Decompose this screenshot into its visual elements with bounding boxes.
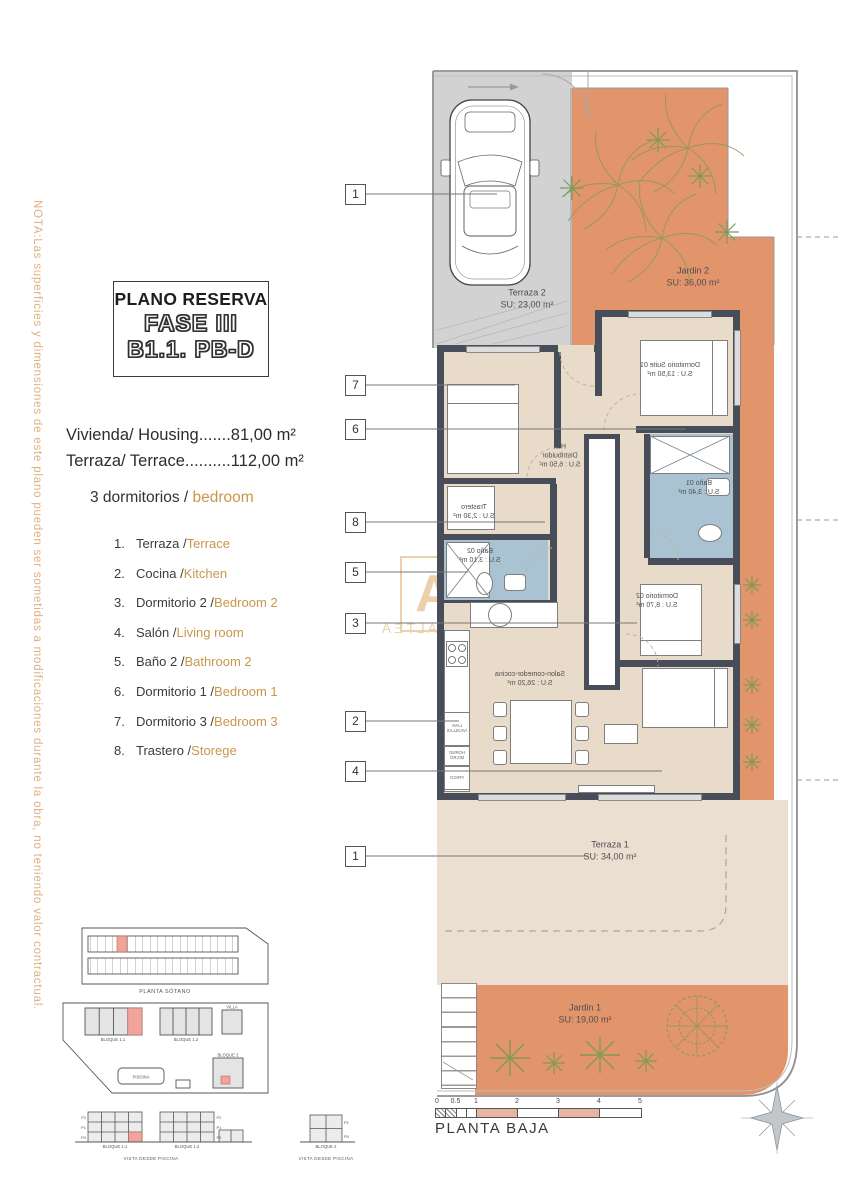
legend-item: 4.Salón / Living room: [114, 625, 278, 640]
floor-label-p0-left: P0: [81, 1135, 87, 1140]
scale-bar: 0 0.5 1 2 3 4 5 PLANTA BAJA: [435, 1098, 665, 1144]
legend-en: Kitchen: [184, 566, 227, 581]
tag-kitchen: 2: [345, 711, 366, 732]
garden1: [475, 985, 788, 1095]
site-bloque2-label: BLOQUE 2: [218, 1053, 240, 1058]
terrace1: [437, 800, 788, 985]
legend-item: 7.Dormitorio 3 / Bedroom 3: [114, 714, 278, 729]
terrace2-label: Terraza 2SU: 23,00 m²: [500, 287, 553, 310]
window-living-2: [598, 794, 702, 801]
wall-left: [437, 345, 444, 800]
tag-bedroom1: 6: [345, 419, 366, 440]
site-villa-label: VILLA: [226, 1005, 238, 1010]
pillow-bedroom3: [447, 384, 519, 404]
legend-item: 6.Dormitorio 1 / Bedroom 1: [114, 684, 278, 699]
legend-num: 7.: [114, 714, 136, 729]
floor-label-p1-left: P1: [81, 1125, 87, 1130]
pillow-bedroom2: [640, 640, 702, 656]
elevation-bloque11-caption: BLOQUE 1.1: [103, 1144, 128, 1149]
oven-unit: HORNO MICRO: [444, 746, 470, 766]
elevation1-caption: VISTA DESDE PISCINA: [124, 1156, 179, 1161]
scale-tick: 4: [597, 1098, 601, 1105]
legend-item: 2.Cocina / Kitchen: [114, 566, 278, 581]
floor-label-p0-right: P0: [217, 1135, 223, 1140]
legend-item: 3.Dormitorio 2 / Bedroom 2: [114, 595, 278, 610]
storage-label: TrasteroS.U : 2,30 m²: [453, 503, 494, 521]
basement-caption: PLANTA SÓTANO: [139, 988, 191, 995]
legend-en: Living room: [176, 625, 243, 640]
wall-bed3-storage: [444, 478, 556, 484]
bathroom2-label: Baño 02S.U : 3,10 m²: [459, 547, 500, 565]
window-suite-top: [628, 311, 712, 318]
legend-item: 1.Terraza / Terrace: [114, 536, 278, 551]
scale-tick: 1: [474, 1098, 478, 1105]
legend-en: Bedroom 3: [214, 714, 278, 729]
bedrooms-heading-en: bedroom: [193, 489, 254, 506]
chair: [493, 750, 507, 765]
window-suite-right: [734, 330, 741, 406]
legend-num: 2.: [114, 566, 136, 581]
site-bloque11-label: BLOQUE 1.1: [101, 1037, 126, 1042]
floor-label-p1-b2: P1: [344, 1120, 350, 1125]
elevation2-caption: VISTA DESDE PISCINA: [299, 1156, 354, 1161]
floor-name: PLANTA BAJA: [435, 1120, 550, 1137]
legend-es: Dormitorio 3 /: [136, 714, 214, 729]
legend-es: Terraza /: [136, 536, 187, 551]
unit-code: B1.1. PB-D: [114, 336, 268, 362]
legend-item: 5.Baño 2 / Bathroom 2: [114, 654, 278, 669]
window-bedroom3: [466, 346, 540, 353]
wall-bed2-bottom: [614, 660, 733, 667]
garden2-upper: [572, 88, 728, 237]
area-summary: Vivienda/ Housing.......81,00 m² Terraza…: [66, 422, 304, 474]
scale-bar-strip: [435, 1108, 642, 1118]
terrace1-label: Terraza 1SU: 34,00 m²: [583, 839, 636, 862]
elevation-bloque2-caption: BLOQUE 2: [316, 1144, 338, 1149]
site-plan: [63, 1003, 268, 1093]
entrance-opening: [558, 345, 594, 352]
legend-num: 8.: [114, 743, 136, 758]
tag-terrace1: 1: [345, 846, 366, 867]
floor-label-p0-b2: P0: [344, 1134, 350, 1139]
note-vertical-text: NOTA:Las superficies y dimensiones de es…: [31, 200, 43, 1040]
chair: [575, 702, 589, 717]
legend-en: Storege: [191, 743, 237, 758]
legend-es: Salón /: [136, 625, 176, 640]
tag-bathroom2: 5: [345, 562, 366, 583]
pillow-suite: [712, 340, 728, 416]
fridge-label: FRIGO: [450, 776, 464, 781]
bedrooms-heading-es: 3 dormitorios /: [90, 489, 193, 506]
floor-plan-sheet: { "colors": { "accent_orange": "#c9964a"…: [0, 0, 847, 1200]
elevation-bloque1: [75, 1112, 252, 1142]
wall-hall-left: [550, 484, 557, 602]
dishwasher-label: LAVA /VAJILLAS: [445, 724, 469, 734]
wall-suite-bottom: [636, 426, 733, 433]
wall-bath1-bed2: [648, 558, 733, 565]
wardrobe-hall: [584, 434, 620, 690]
suite-label: Dormitorio Suite 01S.U : 13,50 m²: [640, 361, 700, 379]
legend-en: Bedroom 2: [214, 595, 278, 610]
elevation-bloque2: [300, 1115, 355, 1142]
floor-label-p1-right: P1: [217, 1125, 223, 1130]
wall-connector: [595, 310, 602, 352]
window-living-1: [478, 794, 566, 801]
room-legend: 1.Terraza / Terrace 2.Cocina / Kitchen 3…: [114, 536, 278, 758]
floor-label-p2-right: P2: [217, 1115, 223, 1120]
kitchen-counter-top: [470, 602, 558, 628]
legend-num: 6.: [114, 684, 136, 699]
sink-bath2: [504, 574, 526, 591]
legend-num: 4.: [114, 625, 136, 640]
sofa-back: [714, 668, 728, 728]
tag-bedroom3: 7: [345, 375, 366, 396]
exterior-steps: [441, 983, 477, 1089]
legend-num: 3.: [114, 595, 136, 610]
legend-num: 1.: [114, 536, 136, 551]
legend-item: 8.Trastero / Storege: [114, 743, 278, 758]
window-bedroom2-right: [734, 584, 741, 644]
chair: [575, 726, 589, 741]
toilet-bath2: [476, 572, 493, 595]
scale-tick: 0.5: [451, 1098, 461, 1105]
site-bloque12-label: BLOQUE 1.2: [174, 1037, 199, 1042]
dishwasher-unit: LAVA /VAJILLAS: [444, 712, 470, 746]
shower-bath1: [650, 436, 730, 474]
legend-es: Dormitorio 1 /: [136, 684, 214, 699]
bedroom2-label: Dormitorio 02S.U : 8,70 m²: [636, 592, 678, 610]
legend-en: Terrace: [187, 536, 230, 551]
reference-dashes: [797, 237, 840, 780]
legend-es: Baño 2 /: [136, 654, 184, 669]
living-kitchen-label: Salon-comedor-cocinaS.U : 26,20 m²: [495, 670, 565, 688]
hall-label: HallDistribuidorS.U : 6,50 m²: [539, 442, 580, 469]
tag-living: 4: [345, 761, 366, 782]
tag-terrace2: 1: [345, 184, 366, 205]
fridge-unit: FRIGO: [444, 766, 470, 790]
chair: [493, 726, 507, 741]
chair: [575, 750, 589, 765]
dining-table: [510, 700, 572, 764]
site-diagrams: PLANTA SÓTANO BLOQUE 1.1 BLOQUE 1.2 VILL…: [60, 920, 360, 1165]
legend-es: Cocina /: [136, 566, 184, 581]
terrace-area-line: Terraza/ Terrace..........112,00 m²: [66, 448, 304, 474]
tv-cabinet: [578, 785, 655, 793]
toilet-bath1: [698, 524, 722, 542]
chair: [493, 702, 507, 717]
legend-es: Trastero /: [136, 743, 191, 758]
garden2-label: Jardin 2SU: 36,00 m²: [666, 265, 719, 288]
legend-es: Dormitorio 2 /: [136, 595, 214, 610]
scale-tick: 0: [435, 1098, 439, 1105]
bathroom1-label: Baño 01S.U : 3,40 m²: [678, 479, 719, 497]
wall-bed3-hall: [554, 352, 561, 448]
garden1-label: Jardin 1SU: 19,00 m²: [558, 1002, 611, 1025]
legend-en: Bathroom 2: [184, 654, 251, 669]
elevation-bloque12-caption: BLOQUE 1.2: [175, 1144, 200, 1149]
bedrooms-heading: 3 dormitorios / bedroom: [90, 489, 254, 507]
basement-plan: [82, 928, 268, 984]
coffee-table: [604, 724, 638, 744]
housing-area-line: Vivienda/ Housing.......81,00 m²: [66, 422, 304, 448]
tag-bedroom2: 3: [345, 613, 366, 634]
site-piscina-label: PISCINA: [133, 1075, 150, 1080]
scale-tick: 2: [515, 1098, 519, 1105]
stove: [446, 641, 468, 667]
wall-storage-bath2: [444, 534, 554, 540]
garden-right-strip: [740, 345, 774, 800]
plan-title: PLANO RESERVA: [114, 289, 268, 310]
tag-storage: 8: [345, 512, 366, 533]
wall-hall-suite: [595, 352, 602, 396]
floor-label-p2-left: P2: [81, 1115, 87, 1120]
title-box: PLANO RESERVA FASE III B1.1. PB-D: [113, 281, 269, 377]
kitchen-sink-round: [488, 603, 512, 627]
legend-en: Bedroom 1: [214, 684, 278, 699]
legend-num: 5.: [114, 654, 136, 669]
scale-tick: 3: [556, 1098, 560, 1105]
phase-title: FASE III: [114, 310, 268, 336]
scale-tick: 5: [638, 1098, 642, 1105]
oven-label: HORNO MICRO: [445, 751, 469, 761]
